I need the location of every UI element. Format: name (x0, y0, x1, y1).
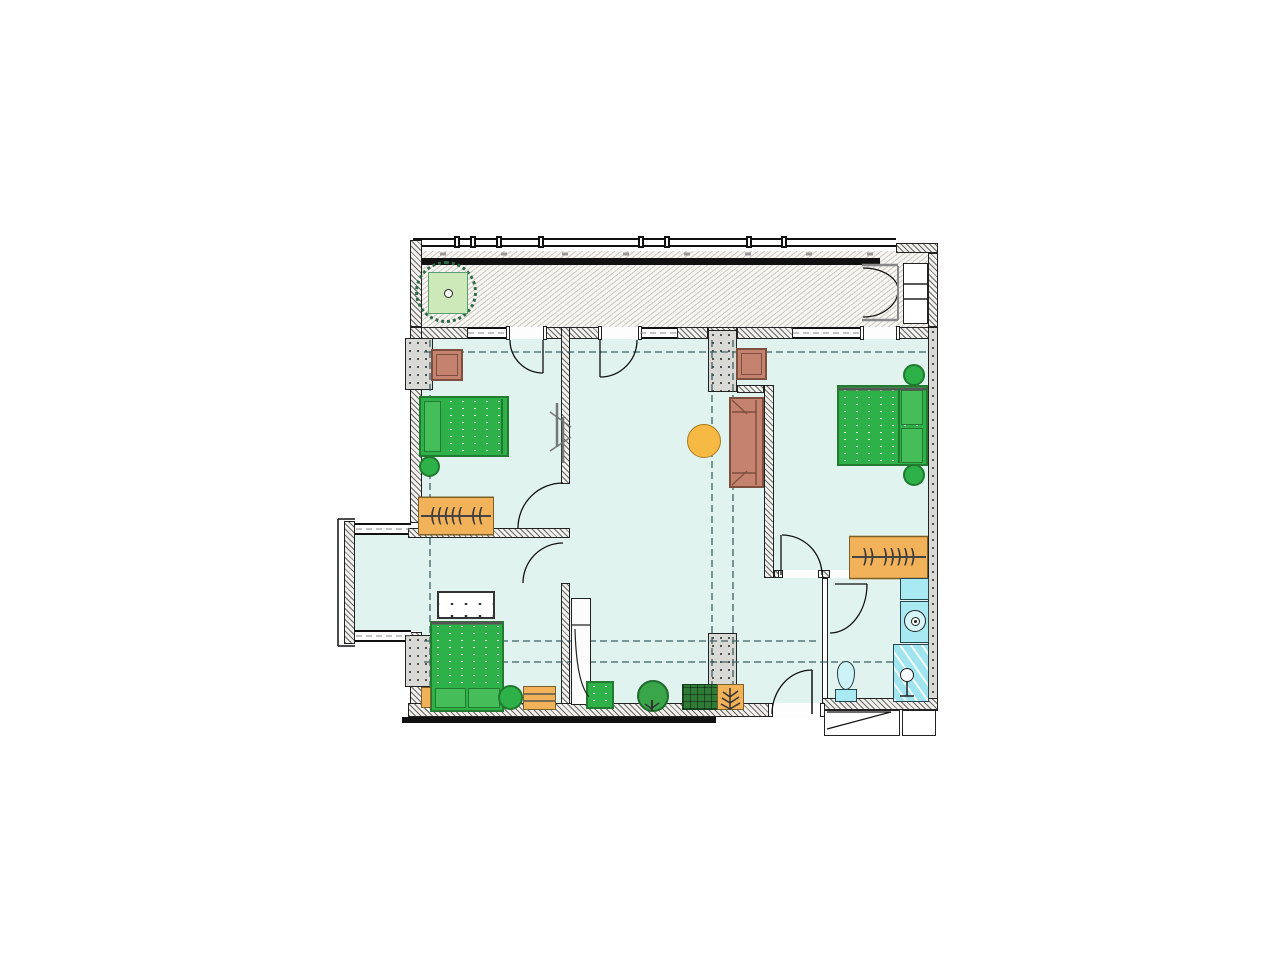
tv-bracket-1 (550, 412, 571, 427)
door-arc-entrance (772, 670, 812, 714)
door-threshold (782, 570, 822, 578)
wall-interior-b-stub (737, 385, 764, 393)
double-bed-pillow-1 (901, 390, 923, 425)
rail-post (781, 236, 787, 248)
fern-frond-1 (723, 691, 738, 697)
window-top-1 (468, 327, 508, 339)
washing-machine-dot (914, 620, 917, 623)
double-bed-pillow-2 (901, 428, 923, 463)
column-top-middle (708, 330, 737, 392)
structure-layer (0, 0, 1280, 960)
rail-post (470, 236, 476, 248)
rail-post (664, 236, 670, 248)
balcony-planter-box (428, 272, 468, 314)
jamb-cap (778, 570, 783, 578)
wall-bedrooms-divider (408, 528, 570, 538)
axis-dash-layer (0, 0, 1280, 960)
door-arc-bedroom-pair-down (523, 543, 563, 583)
wall-top-5 (898, 327, 938, 339)
wall-left-lower (410, 643, 422, 705)
balcony-cabinet (903, 263, 928, 324)
armchair-living-seat (741, 353, 762, 375)
jamb-cap (598, 326, 602, 340)
door-arc-bathroom (830, 584, 867, 633)
door-threshold (600, 327, 640, 339)
entrance-threshold (770, 703, 822, 717)
jamb-cap (818, 570, 823, 578)
jamb-cap (820, 703, 825, 717)
door-arc-right-bedroom (782, 535, 822, 575)
door-arc-left-bedroom (510, 340, 543, 373)
wardrobe-right-bedroom: )) ))))) (849, 536, 928, 580)
wall-left-balcony (410, 240, 422, 327)
door-threshold (508, 327, 545, 339)
column-bottom-middle (708, 633, 737, 686)
sofa-corner-2 (732, 471, 747, 485)
jamb-cap (638, 326, 642, 340)
armchair-left-bedroom-seat (436, 354, 458, 376)
wall-bottom-right (822, 698, 938, 710)
bed-left-bedroom-pillow (424, 401, 441, 452)
balcony-planter-ring (415, 261, 477, 323)
shower-tray (893, 644, 929, 702)
door-arc-bedroom-pair-up (518, 483, 563, 528)
cabinet-door-curve (575, 629, 589, 697)
floor-plan-canvas: ((((( (()) ))))) (0, 0, 1280, 960)
bed-bottom-room (430, 621, 504, 712)
rail-post (496, 236, 502, 248)
window-top-2 (640, 327, 677, 339)
nightstand-round-2 (903, 464, 925, 486)
hall-plant (637, 680, 669, 712)
sofa-living (729, 397, 764, 488)
wall-hall-bedroom-1 (774, 570, 782, 578)
hall-shelf-dark (682, 684, 718, 710)
balcony-double-door-arc-2 (863, 290, 898, 317)
jamb-cap (543, 326, 547, 340)
balcony-double-door-arc-1 (863, 268, 898, 290)
wall-interior-a-upper (561, 327, 570, 484)
balcony-rail-top (413, 238, 896, 240)
pouf-bottom-room (498, 685, 523, 710)
column-top-left (405, 338, 433, 390)
washing-machine-door (911, 617, 920, 626)
jamb-cap (506, 326, 510, 340)
balcony-floor (421, 251, 928, 327)
tv-bracket-2 (550, 437, 571, 451)
rail-post (454, 236, 460, 248)
jamb-cap (896, 326, 900, 340)
rail-post (746, 236, 752, 248)
wall-top-1 (421, 327, 468, 339)
bed-left-bedroom (419, 396, 509, 457)
shower-head (900, 668, 914, 682)
wall-interior-b (764, 385, 774, 578)
radiator-bottom-room (437, 591, 495, 619)
radiator-strip (421, 687, 431, 708)
fern-frond-3 (721, 703, 740, 709)
bed-bottom-pillow-2 (468, 688, 500, 708)
window-bay-top (355, 523, 411, 535)
furniture-layer: ((((( (()) ))))) (0, 0, 1280, 960)
armchair-living (736, 348, 767, 380)
toilet-tank (835, 689, 857, 702)
balcony-edge-beam (422, 258, 880, 265)
washing-machine (900, 601, 929, 643)
bay-window-floor (354, 534, 422, 631)
jamb-cap (768, 703, 773, 717)
jamb-cap (860, 326, 864, 340)
sofa-corner-1 (732, 400, 747, 414)
round-table-living (687, 424, 721, 458)
wall-bath-thin (822, 578, 828, 703)
rail-post (538, 236, 544, 248)
window-below-bath-2 (902, 710, 936, 736)
toilet-bowl (837, 661, 855, 690)
nightstand-round-1 (903, 364, 925, 386)
wall-bay-connector (408, 632, 422, 644)
hall-plant-stand (717, 684, 744, 710)
window-bay-bottom (355, 630, 411, 642)
wall-interior-a-lower (561, 583, 570, 705)
wall-top-3 (677, 327, 708, 339)
bed-bottom-pillow-1 (435, 688, 466, 708)
wall-bay-outer (344, 521, 355, 644)
doors-decor-layer (0, 0, 1280, 960)
window-sill-zigzag (827, 712, 891, 729)
plant-branch-1 (645, 704, 652, 709)
wall-top-under-column (708, 327, 737, 339)
wall-bottom (408, 703, 770, 717)
rail-post (638, 236, 644, 248)
hall-cabinet-green (586, 681, 614, 709)
wardrobe-left-bedroom: ((((( (( (418, 497, 494, 536)
window-below-bath-1 (824, 710, 900, 736)
armchair-left-bedroom (431, 349, 463, 381)
washing-machine-drum (904, 610, 926, 632)
window-top-3 (793, 327, 862, 339)
wall-right-balcony (928, 253, 938, 327)
wall-top-4 (737, 327, 793, 339)
wall-top-2 (545, 327, 600, 339)
column-bottom-left (405, 635, 433, 687)
bath-counter (900, 578, 929, 600)
tall-cabinet-living (571, 598, 591, 705)
wall-corner-top-right (896, 243, 938, 253)
balcony-rail-bottom (413, 245, 896, 247)
wall-right-exterior (928, 327, 938, 711)
door-arc-living-balcony (600, 340, 637, 377)
fern-frond-2 (722, 697, 739, 703)
chest-bottom-room (523, 686, 556, 710)
door-threshold (830, 570, 868, 578)
plant-branch-2 (652, 703, 659, 708)
door-threshold (862, 327, 898, 339)
wall-hall-bedroom-2 (822, 570, 830, 578)
wall-left-upper (410, 327, 422, 523)
double-bed-right-bedroom (837, 385, 928, 466)
wall-bedroom-bath (868, 570, 928, 578)
plinth-bottom (402, 717, 716, 723)
apartment-floor (420, 332, 930, 706)
balcony-planter-pot (444, 289, 453, 298)
pouf-left-bedroom (419, 456, 440, 477)
